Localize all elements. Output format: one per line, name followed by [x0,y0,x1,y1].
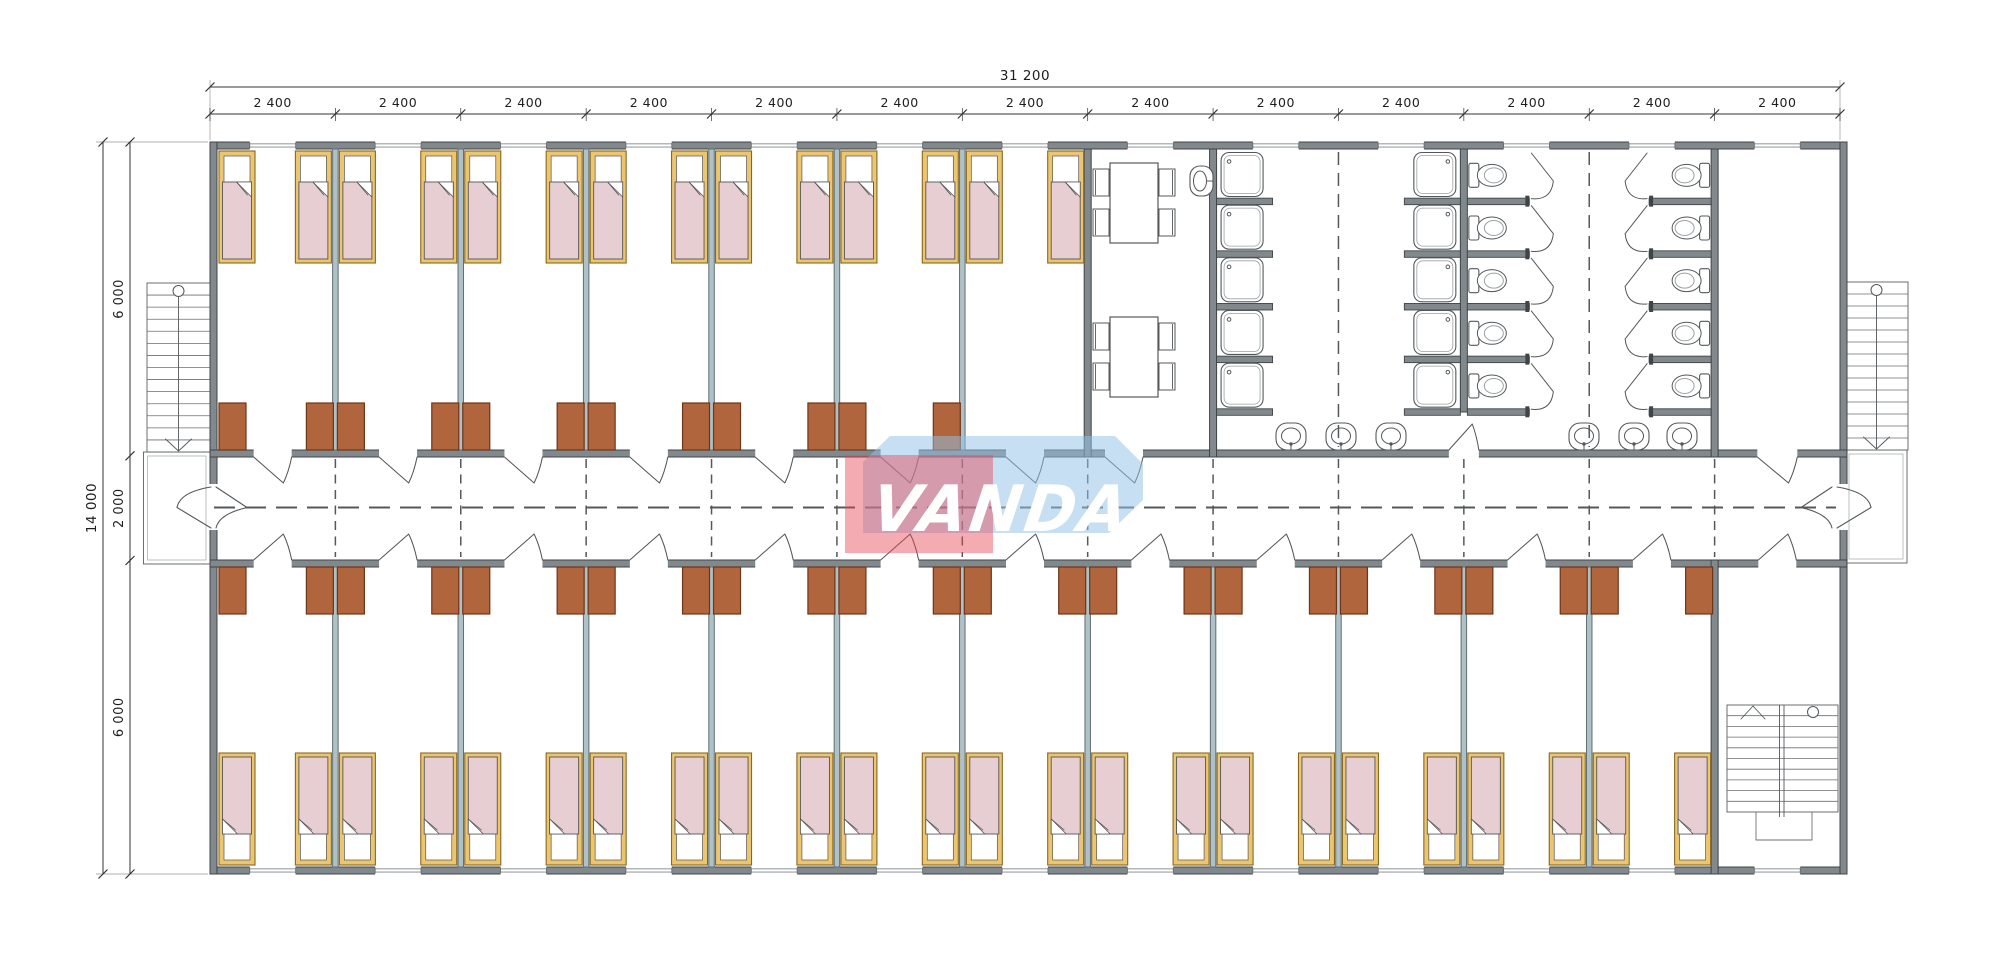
dimension-left-segments: 6 0002 0006 000 [112,138,135,879]
stall-partition-cap [1649,196,1653,207]
shower-tray [1414,363,1456,407]
wardrobe [1059,567,1086,614]
stall-partition [1404,409,1460,416]
bed-blanket [299,182,328,259]
door-swing [1131,534,1169,560]
window-gap [751,867,797,875]
bed-blanket [970,182,999,259]
stall-partition-cap [1649,301,1653,312]
bed-blanket [223,182,252,259]
wardrobe [839,567,866,614]
dim-label-bay: 2 400 [379,95,417,110]
stall-door-swing [1625,258,1647,304]
stairs-exterior-left [147,283,210,452]
stall-partition [1467,251,1529,258]
dimension-top-bays: 2 4002 4002 4002 4002 4002 4002 4002 400… [206,95,1845,121]
bed [716,753,752,865]
shower-tray [1221,258,1263,302]
dim-label-bay: 2 400 [1257,95,1295,110]
bed [1048,753,1084,865]
bed [1298,753,1334,865]
stall-partition [1217,356,1273,363]
bed [922,151,958,263]
bed [465,753,501,865]
window-gap [1504,867,1550,875]
bed [797,151,833,263]
stall-door-swing [1531,206,1553,252]
bed [966,753,1002,865]
wardrobe [933,567,960,614]
shower-tray [1414,205,1456,249]
door-swing [504,534,542,560]
window-gap [1378,867,1424,875]
stall-partition [1217,198,1273,205]
wash-basin-bowl [1575,428,1594,444]
stall-partition [1649,356,1711,363]
stall-partition-cap [1525,354,1529,365]
window-gap [500,142,546,150]
door-swing [254,457,292,483]
bed [1342,753,1378,865]
bed-blanket [550,182,579,259]
wardrobe [463,403,490,450]
logo-text-group: VANDA [867,472,1135,547]
wash-basin-tap-dot [1290,443,1292,445]
floor-plan-canvas: 31 2002 4002 4002 4002 4002 4002 4002 40… [0,0,2000,977]
bed [546,151,582,263]
door-swing [254,534,292,560]
dim-label-bay: 2 400 [1131,95,1169,110]
bed [841,151,877,263]
dim-label-bay: 2 400 [755,95,793,110]
wash-basin-bowl [1194,171,1207,191]
shower-drain [1227,160,1231,164]
bed-blanket [800,182,829,259]
wardrobe [808,567,835,614]
shower-tray [1221,310,1263,354]
bed [1549,753,1585,865]
dim-label-height-segment: 6 000 [112,697,127,737]
bed [339,151,375,263]
window-gap [877,867,923,875]
door-gap [1449,449,1479,458]
landing-left [144,452,211,564]
door-swing [1757,457,1797,483]
wardrobe [1466,567,1493,614]
stall-door-swing [1531,258,1553,304]
stall-partition [1649,409,1711,416]
bed-blanket [424,182,453,259]
stall-partition [1217,409,1273,416]
door-gap [881,559,919,568]
wardrobe [1090,567,1117,614]
window-gap [1378,142,1424,150]
wash-basin-bowl [1282,428,1301,444]
door-swing [1508,534,1546,560]
bed [339,753,375,865]
window-gap [1629,142,1675,150]
bed [1092,753,1128,865]
stall-partition-cap [1525,301,1529,312]
stall-partition [1217,251,1273,258]
shower-tray [1221,363,1263,407]
entrance-gap-right [1839,484,1848,530]
window-gap [1629,867,1675,875]
wardrobe [588,567,615,614]
shower-tray [1414,310,1456,354]
wall-interior [1084,149,1091,457]
stair-start-circle [1808,707,1819,718]
door-swing [379,534,417,560]
stall-partition [1467,356,1529,363]
stall-partition-cap [1525,406,1529,417]
door-gap [379,449,417,458]
door-gap [1758,559,1796,568]
door-swing [1257,534,1295,560]
wash-basin-tap-dot [1390,443,1392,445]
bed [590,753,626,865]
wardrobe [1309,567,1336,614]
dim-label-bay: 2 400 [1633,95,1671,110]
stall-partition [1467,198,1529,205]
stall-partition [1404,198,1460,205]
window-gap [1754,867,1800,875]
wash-basin-tap-dot [1681,443,1683,445]
dim-label-bay: 2 400 [1758,95,1796,110]
bed [295,151,331,263]
stall-partition [1467,303,1529,310]
wardrobe [1591,567,1618,614]
door-gap [1257,559,1295,568]
dim-label-height-segment: 6 000 [112,279,127,319]
stall-partition-cap [1649,354,1653,365]
stall-partition-cap [1525,248,1529,259]
shower-drain [1227,265,1231,269]
bed [841,753,877,865]
window-gap [1127,867,1173,875]
wardrobe [683,403,710,450]
wardrobe [1184,567,1211,614]
shower-drain [1446,318,1450,322]
stairs-exterior-right [1845,282,1908,450]
door-swing [504,457,542,483]
wardrobe [839,403,866,450]
window-gap [1002,142,1048,150]
stall-partition-cap [1649,406,1653,417]
bed [1593,753,1629,865]
dim-label-bay: 2 400 [1006,95,1044,110]
bed [1048,151,1084,263]
logo-text: VANDA [867,472,1135,547]
window-gap [1253,867,1299,875]
stairs-interior [1727,705,1838,840]
stall-partition [1649,303,1711,310]
wardrobe [337,567,364,614]
dim-label-height-segment: 2 000 [112,488,127,528]
bed [1675,753,1711,865]
stair-start-circle [1871,285,1882,296]
wall-interior [1210,149,1217,457]
wardrobe [557,567,584,614]
window-gap [1127,142,1173,150]
dimension-top-overall: 31 200 [206,68,1845,92]
bed [672,753,708,865]
wardrobe [219,567,246,614]
door-swing [1633,534,1671,560]
landing-right [1845,450,1907,563]
door-gap [379,559,417,568]
shower-drain [1446,160,1450,164]
wash-basin-tap-dot [1340,443,1342,445]
door-gap [630,449,668,458]
door-gap [504,449,542,458]
stall-door-swing [1625,206,1647,252]
stall-partition [1467,409,1529,416]
window-gap [250,867,296,875]
dimension-left-overall: 14 000 [84,138,108,879]
window-gap [626,142,672,150]
door-gap [1131,559,1169,568]
wardrobe [1560,567,1587,614]
wardrobe [1215,567,1242,614]
shower-drain [1227,318,1231,322]
dining-table [1110,163,1158,243]
door-swing [755,457,793,483]
bed-blanket [594,182,623,259]
bed-blanket [926,182,955,259]
window-gap [375,142,421,150]
window-gap [1504,142,1550,150]
bed-blanket [468,182,497,259]
bed [421,753,457,865]
wash-basin-tap-dot [1633,443,1635,445]
bed [797,753,833,865]
bed-blanket [675,182,704,259]
shower-drain [1446,212,1450,216]
stall-partition [1217,303,1273,310]
stall-partition [1649,198,1711,205]
door-gap [1508,559,1546,568]
bed [421,151,457,263]
stall-partition [1404,356,1460,363]
bed [465,151,501,263]
dining-area [1093,163,1175,397]
bed-blanket [844,182,873,259]
window-gap [1754,142,1800,150]
door-gap [755,449,793,458]
shower-tray [1221,205,1263,249]
shower-tray [1414,258,1456,302]
bed [590,151,626,263]
wardrobe [588,403,615,450]
door-swing [1449,424,1479,450]
bed [966,151,1002,263]
dim-label-bay: 2 400 [1382,95,1420,110]
floor-plan-page: 31 2002 4002 4002 4002 4002 4002 4002 40… [0,0,2000,977]
window-gap [250,142,296,150]
stall-door-swing [1531,364,1553,410]
dim-label-bay: 2 400 [1507,95,1545,110]
door-swing [630,457,668,483]
bed [1424,753,1460,865]
wardrobe [1340,567,1367,614]
wash-basin-bowl [1625,428,1644,444]
door-swing [1382,534,1420,560]
wardrobe [306,403,333,450]
door-gap [504,559,542,568]
stall-door-swing [1531,311,1553,357]
door-swing [1758,534,1796,560]
dining-table [1110,317,1158,397]
stall-door-swing [1625,364,1647,410]
wash-basin-bowl [1673,428,1692,444]
wall-interior [1460,149,1467,412]
wardrobe [219,403,246,450]
watermark-logo: VANDA [845,436,1143,553]
bed-blanket [1051,182,1080,259]
door-gap [1382,559,1420,568]
wardrobe [337,403,364,450]
bed [219,753,255,865]
door-gap [630,559,668,568]
wardrobe [432,403,459,450]
dim-label-bay: 2 400 [254,95,292,110]
wardrobe [964,567,991,614]
stall-partition-cap [1525,196,1529,207]
bed [1217,753,1253,865]
wash-basin-tap-dot [1583,443,1585,445]
bed [922,753,958,865]
wardrobe [1686,567,1713,614]
shower-drain [1227,370,1231,374]
window-gap [500,867,546,875]
shower-tray [1414,153,1456,197]
wardrobe [557,403,584,450]
stall-partition-cap [1649,248,1653,259]
bed [672,151,708,263]
bed [546,753,582,865]
wardrobe [714,567,741,614]
stall-partition [1649,251,1711,258]
wardrobe [463,567,490,614]
shower-tray [1221,153,1263,197]
wardrobe [306,567,333,614]
stall-partition [1404,251,1460,258]
bed [1468,753,1504,865]
bed [1173,753,1209,865]
wardrobe [1435,567,1462,614]
stair-start-circle [173,286,184,297]
window-gap [1253,142,1299,150]
stall-door-swing [1625,311,1647,357]
dim-label-bay: 2 400 [880,95,918,110]
stall-door-swing [1531,153,1553,199]
shower-drain [1227,212,1231,216]
shower-drain [1446,265,1450,269]
wall-interior [1711,149,1718,457]
window-gap [375,867,421,875]
door-swing [379,457,417,483]
wash-basin-bowl [1382,428,1401,444]
door-gap [254,449,292,458]
door-gap [755,559,793,568]
wardrobe [432,567,459,614]
dim-label-overall-width: 31 200 [1000,68,1050,84]
window-gap [1002,867,1048,875]
door-gap [1006,559,1044,568]
window-gap [751,142,797,150]
dim-label-bay: 2 400 [504,95,542,110]
wardrobe [808,403,835,450]
bed-blanket [343,182,372,259]
dim-label-bay: 2 400 [630,95,668,110]
stall-door-swing [1625,153,1647,199]
bed [295,753,331,865]
wash-basin-bowl [1332,428,1351,444]
stall-partition [1404,303,1460,310]
door-swing [630,534,668,560]
door-gap [1633,559,1671,568]
shower-drain [1446,370,1450,374]
wardrobe [683,567,710,614]
bed-blanket [719,182,748,259]
window-gap [626,867,672,875]
window-gap [877,142,923,150]
wardrobe [714,403,741,450]
door-gap [254,559,292,568]
door-gap [1757,449,1797,458]
bed [716,151,752,263]
bed [219,151,255,263]
dim-label-overall-height: 14 000 [84,483,100,533]
door-swing [755,534,793,560]
